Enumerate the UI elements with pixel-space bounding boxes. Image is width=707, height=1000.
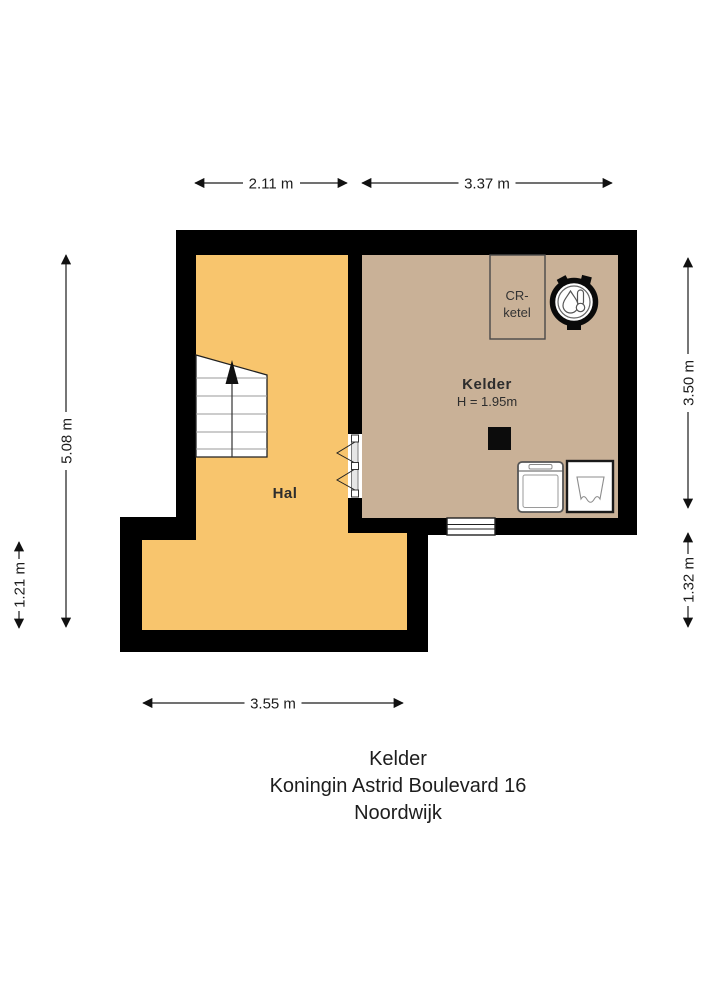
svg-text:1.32 m: 1.32 m [680, 557, 697, 603]
title-city: Noordwijk [270, 800, 527, 827]
title-floor-name: Kelder [270, 746, 527, 773]
svg-text:3.37 m: 3.37 m [464, 176, 510, 193]
svg-text:1.21 m: 1.21 m [11, 562, 28, 608]
dimension-right-lower: 1.32 m [679, 533, 697, 627]
svg-text:5.08 m: 5.08 m [58, 418, 75, 464]
hal-room-label: Hal [273, 485, 298, 502]
dimension-right-upper: 3.50 m [679, 258, 697, 508]
dimension-bottom: 3.55 m [143, 694, 403, 713]
title-address: Koningin Astrid Boulevard 16 [270, 773, 527, 800]
thermometer-bulb-glyph [576, 303, 584, 311]
washing-machine-icon [518, 462, 563, 512]
cr-ketel-label-line2: ketel [503, 305, 531, 320]
svg-text:2.11 m: 2.11 m [249, 176, 294, 193]
dimension-top-left: 2.11 m [195, 174, 347, 193]
floorplan-drawing: CR- ketel [0, 0, 707, 1000]
laundry-sink-icon [567, 461, 613, 512]
cr-ketel-label-line1: CR- [505, 288, 528, 303]
dimension-top-right: 3.37 m [362, 174, 612, 193]
dimension-left-lower: 1.21 m [10, 542, 28, 628]
floorplan-page: CR- ketel [0, 0, 707, 1000]
chimney-duct-block [488, 427, 511, 450]
title-block: Kelder Koningin Astrid Boulevard 16 Noor… [270, 746, 527, 827]
svg-text:3.55 m: 3.55 m [250, 696, 296, 713]
dimension-left-upper: 5.08 m [57, 255, 75, 627]
kelder-height-label: H = 1.95m [457, 394, 517, 409]
svg-text:3.50 m: 3.50 m [680, 360, 697, 406]
window [447, 518, 495, 535]
kelder-room-label: Kelder [462, 376, 512, 393]
